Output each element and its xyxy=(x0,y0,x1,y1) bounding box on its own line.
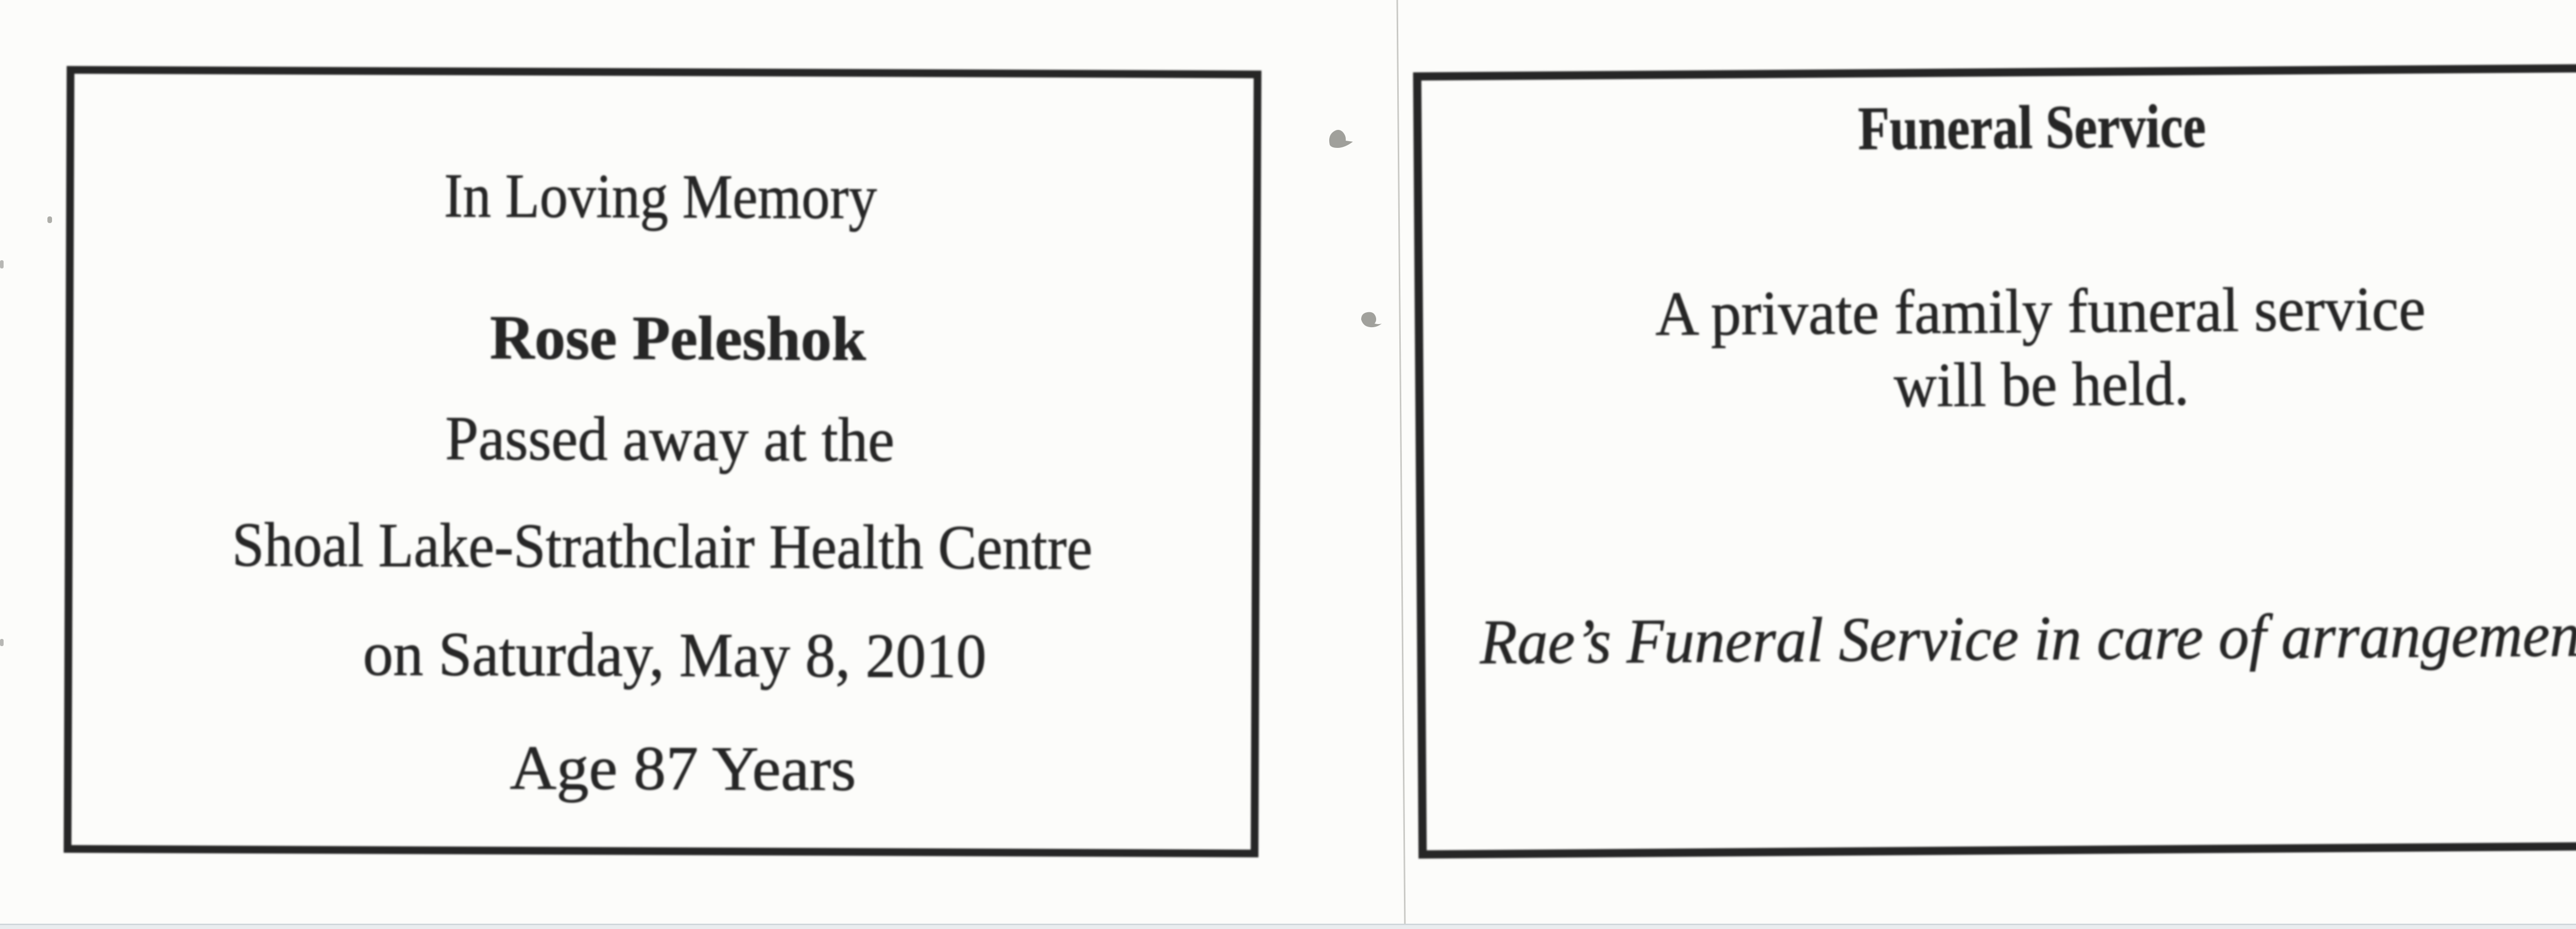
svg-text:on Saturday, May 8, 2010: on Saturday, May 8, 2010 xyxy=(363,619,987,691)
svg-text:Passed away at the: Passed away at the xyxy=(445,403,895,475)
svg-text:In Loving Memory: In Loving Memory xyxy=(444,161,877,232)
svg-text:Funeral Service: Funeral Service xyxy=(1858,92,2206,163)
svg-text:A private family funeral servi: A private family funeral service xyxy=(1655,274,2426,349)
svg-text:Rose Peleshok: Rose Peleshok xyxy=(490,303,867,374)
svg-text:Rae’s Funeral Service in care: Rae’s Funeral Service in care of arrange… xyxy=(1479,599,2576,677)
svg-text:Age 87 Years: Age 87 Years xyxy=(510,733,856,804)
svg-text:Shoal Lake-Strathclair Health: Shoal Lake-Strathclair Health Centre xyxy=(232,510,1093,583)
svg-text:will be held.: will be held. xyxy=(1893,349,2189,420)
